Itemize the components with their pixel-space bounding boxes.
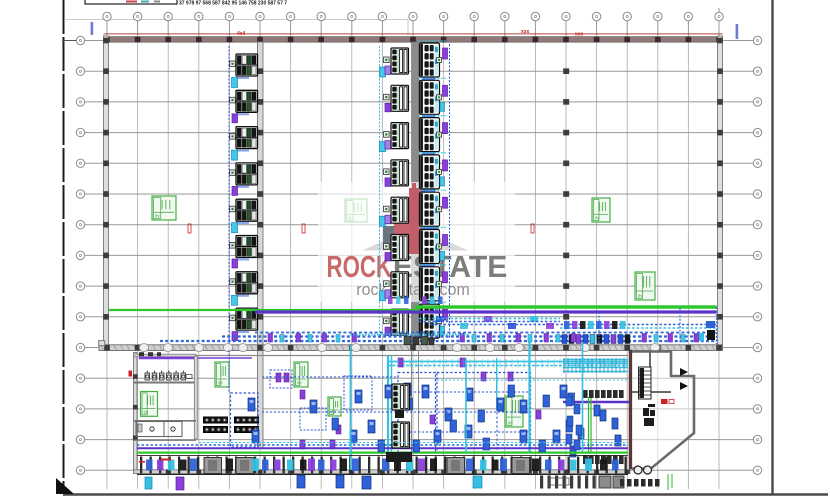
svg-text:ROCK: ROCK bbox=[327, 249, 393, 284]
svg-text:ihl: ihl bbox=[218, 381, 223, 386]
svg-text:ihl: ihl bbox=[595, 216, 600, 221]
svg-text:rock-estate.com: rock-estate.com bbox=[356, 280, 470, 299]
svg-text:ihl: ihl bbox=[508, 421, 513, 426]
svg-text:ihl: ihl bbox=[638, 294, 643, 299]
svg-text:4x4: 4x4 bbox=[237, 31, 246, 37]
svg-text:ihl: ihl bbox=[155, 214, 160, 219]
svg-text:ihl: ihl bbox=[144, 410, 149, 415]
svg-text:37 978 97 568 587 842 95 146 7: 37 978 97 568 587 842 95 146 758 230 587… bbox=[179, 1, 287, 7]
svg-text:ihl: ihl bbox=[297, 381, 302, 386]
svg-text:xxx: xxx bbox=[521, 29, 530, 35]
svg-text:xxx: xxx bbox=[575, 32, 584, 38]
svg-text:ESTATE: ESTATE bbox=[393, 249, 508, 284]
